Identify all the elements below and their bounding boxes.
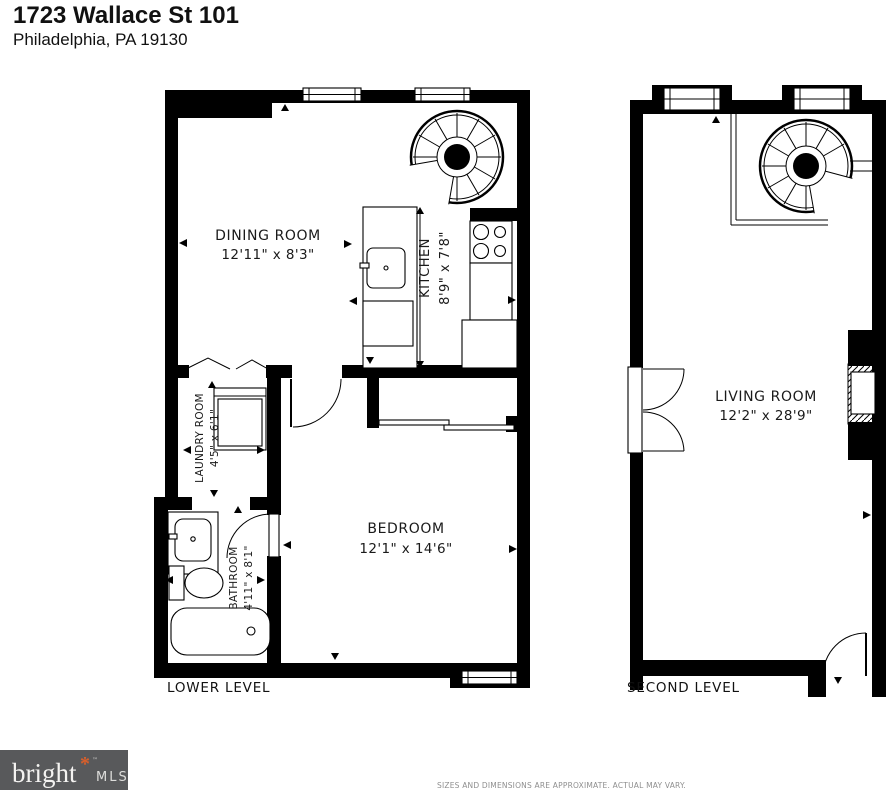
window-icon — [415, 88, 470, 101]
brightmls-logo-text: bright — [12, 758, 77, 788]
sink-icon — [360, 248, 405, 288]
bathtub-icon — [171, 608, 270, 655]
brightmls-logo-suffix: MLS — [96, 770, 129, 785]
page-title: 1723 Wallace St 101 — [13, 2, 239, 29]
lower-level-label: LOWER LEVEL — [167, 680, 270, 696]
bifold-door-icon — [186, 358, 268, 369]
window-icon — [794, 88, 850, 110]
kitchen-dims: 8'9" x 7'8" — [438, 231, 453, 305]
window-icon — [664, 88, 720, 110]
closet-sliding-door-icon — [379, 420, 514, 430]
kitchen-island — [360, 207, 424, 368]
window-icon — [462, 671, 517, 684]
footer: bright * ™ MLS SIZES AND DIMENSIONS ARE … — [0, 750, 686, 790]
bedroom-label: BEDROOM — [367, 521, 444, 537]
living-room-dims: 12'2" x 28'9" — [719, 408, 812, 424]
floorplan-image: 1723 Wallace St 101 Philadelphia, PA 191… — [0, 0, 886, 790]
dining-room-label: DINING ROOM — [215, 228, 321, 244]
spiral-staircase-icon — [760, 120, 852, 213]
bathroom-dims: 4'11" x 8'1" — [243, 545, 255, 610]
dishwasher-icon — [363, 301, 413, 346]
spiral-staircase-icon — [410, 111, 503, 204]
kitchen-label: KITCHEN — [418, 238, 433, 298]
vanity-sink-icon — [168, 512, 218, 574]
bathroom-label: BATHROOM — [228, 546, 240, 609]
french-doors-icon — [628, 367, 684, 453]
washer-icon — [214, 388, 266, 450]
living-room-label: LIVING ROOM — [715, 389, 817, 405]
second-level-plan: LIVING ROOM 12'2" x 28'9" SECOND LEVEL — [627, 85, 886, 697]
lower-level-plan: DINING ROOM 12'11" x 8'3" KITCHEN 8'9" x… — [154, 88, 530, 696]
second-level-label: SECOND LEVEL — [627, 680, 740, 696]
stove-icon — [470, 221, 512, 263]
logo-star-icon: * — [80, 753, 90, 775]
logo-tm-mark: ™ — [92, 757, 98, 764]
page-subtitle: Philadelphia, PA 19130 — [13, 30, 188, 49]
bedroom-dims: 12'1" x 14'6" — [359, 541, 452, 557]
disclaimer-text: SIZES AND DIMENSIONS ARE APPROXIMATE. AC… — [437, 781, 686, 790]
window-icon — [303, 88, 361, 101]
kitchen-counter — [462, 263, 517, 368]
entry-door-icon — [823, 633, 866, 676]
laundry-room-label: LAUNDRY ROOM — [194, 393, 206, 483]
dining-room-dims: 12'11" x 8'3" — [221, 247, 314, 263]
bedroom-door-icon — [291, 379, 341, 427]
fireplace-icon — [848, 364, 884, 424]
laundry-room-dims: 4'5" x 6'1" — [209, 409, 221, 467]
toilet-icon — [169, 566, 223, 600]
